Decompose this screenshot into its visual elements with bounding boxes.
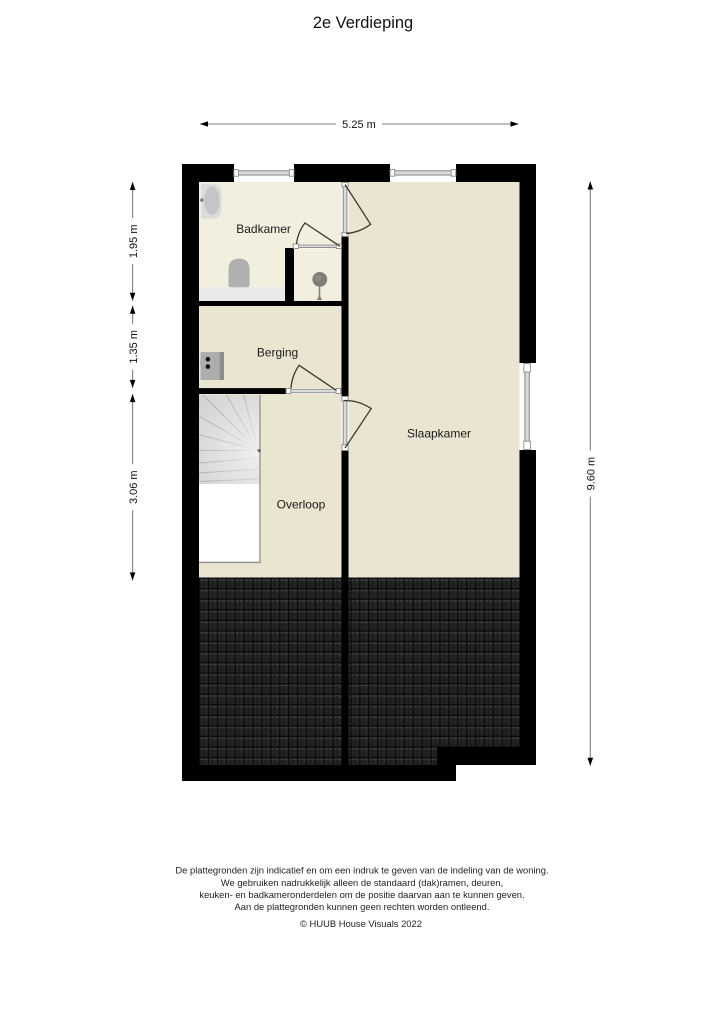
svg-text:Slaapkamer: Slaapkamer [407,427,471,441]
svg-text:keuken- en badkameronderdelen: keuken- en badkameronderdelen om de posi… [199,889,524,900]
svg-text:1.95 m: 1.95 m [128,224,140,258]
svg-text:3.06 m: 3.06 m [128,470,140,504]
svg-text:© HUUB House Visuals 2022: © HUUB House Visuals 2022 [300,918,422,929]
svg-text:1.35 m: 1.35 m [128,330,140,364]
svg-text:2e Verdieping: 2e Verdieping [313,14,413,32]
svg-text:9.60 m: 9.60 m [586,457,598,491]
svg-text:Badkamer: Badkamer [236,222,291,236]
svg-text:Aan de plattegronden kunnen ge: Aan de plattegronden kunnen geen rechten… [235,901,490,912]
svg-text:Overloop: Overloop [277,498,326,512]
svg-text:De plattegronden zijn indicati: De plattegronden zijn indicatief en om e… [175,865,548,876]
svg-text:We gebruiken nadrukkelijk alle: We gebruiken nadrukkelijk alleen de stan… [221,877,503,888]
svg-text:Berging: Berging [257,346,298,360]
svg-text:5.25 m: 5.25 m [342,119,376,131]
